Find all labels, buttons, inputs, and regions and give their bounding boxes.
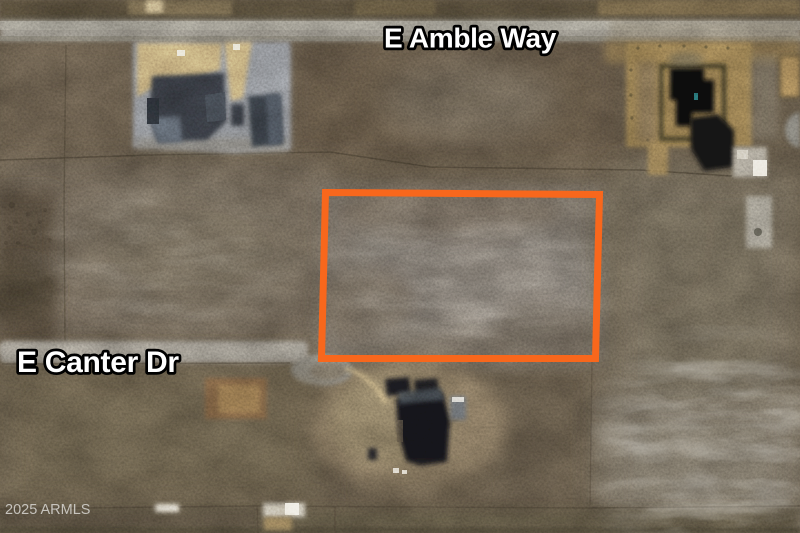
svg-text:2025 ARMLS: 2025 ARMLS xyxy=(5,502,90,518)
svg-text:E Amble Way: E Amble Way xyxy=(384,23,557,54)
svg-text:E Canter Dr: E Canter Dr xyxy=(17,346,179,379)
